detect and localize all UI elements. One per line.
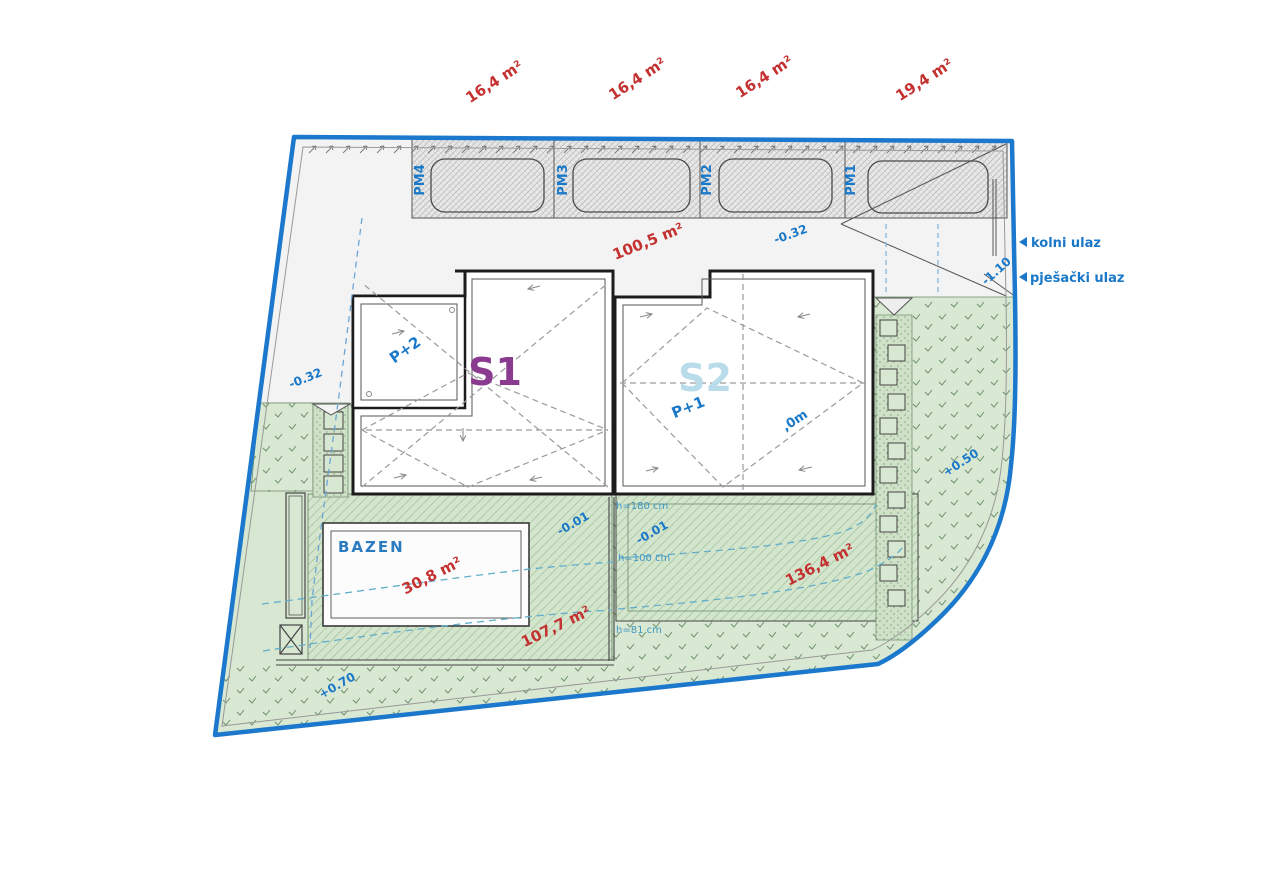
area-label-pm4: 16,4 m² (462, 57, 526, 107)
stall-label-pm2: PM2 (700, 164, 715, 196)
area-label-pm3: 16,4 m² (605, 54, 669, 104)
wall-height-3: h=81 cm (616, 625, 662, 636)
site-plan-drawing: 16,4 m² 16,4 m² 16,4 m² 19,4 m² PM4 PM3 … (0, 0, 1280, 869)
building-s1-name: S1 (468, 350, 522, 394)
stall-label-pm3: PM3 (556, 164, 571, 196)
pool-label: BAZEN (338, 538, 405, 556)
parking-area-labels: 16,4 m² 16,4 m² 16,4 m² 19,4 m² (462, 52, 956, 107)
vehicle-entrance-label: kolni ulaz (1031, 236, 1101, 251)
roof-marker-1 (367, 392, 372, 397)
vehicle-entrance-arrow (1019, 237, 1027, 247)
stall-label-pm4: PM4 (413, 164, 428, 196)
stall-label-pm1: PM1 (844, 164, 859, 196)
pedestrian-entrance-label: pješački ulaz (1030, 271, 1124, 286)
roof-marker-2 (450, 308, 455, 313)
wall-height-1: h=180 cm (616, 501, 668, 512)
stairs-box (280, 625, 302, 654)
wall-height-2: h=100 cm (618, 553, 670, 564)
pedestrian-entrance-arrow (1019, 272, 1027, 282)
left-grass-box (251, 403, 313, 491)
building-s2-name: S2 (678, 356, 732, 400)
area-label-pm2: 16,4 m² (732, 52, 796, 102)
site-plan-canvas: 16,4 m² 16,4 m² 16,4 m² 19,4 m² PM4 PM3 … (0, 0, 1280, 869)
area-label-pm1: 19,4 m² (892, 55, 956, 105)
